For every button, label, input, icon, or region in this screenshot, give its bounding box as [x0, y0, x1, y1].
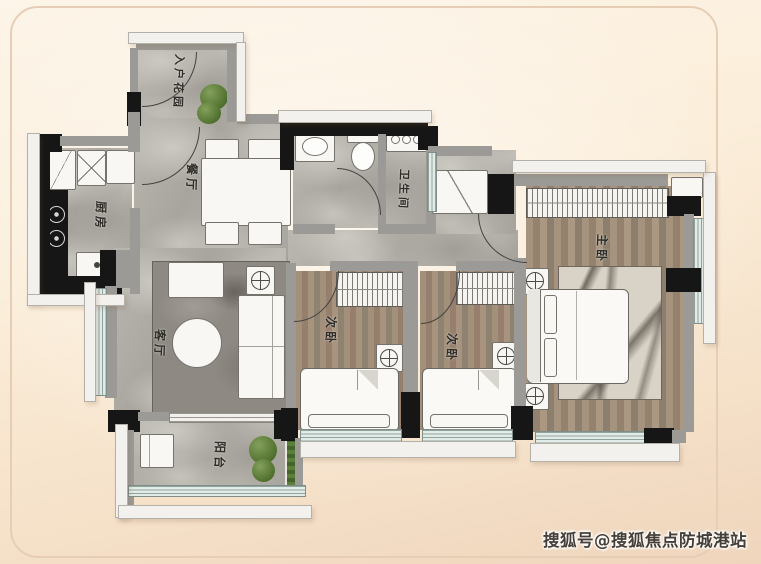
exterior-band [300, 441, 516, 458]
lamp-icon [526, 272, 544, 290]
floorplan-page: { "plan": { "rooms": [ {"id": "entry-gar… [0, 0, 761, 564]
washer-knob-icon [391, 135, 400, 144]
exterior-band [27, 294, 125, 306]
washer-knob-icon [402, 135, 411, 144]
room-label-living: 客厅 [151, 329, 169, 360]
lamp-icon [380, 349, 398, 367]
bedroom-3-bed-fold [478, 370, 499, 390]
entry-plant-2-icon [197, 102, 221, 124]
wall [456, 261, 516, 271]
kitchen-shaft [77, 150, 106, 186]
wall [378, 224, 436, 234]
lamp-icon [526, 387, 544, 405]
bathroom-window [427, 152, 437, 212]
master-bed-pillow [544, 295, 557, 334]
fridge [46, 150, 76, 190]
bedroom-2-wardrobe [336, 272, 404, 307]
wall [514, 258, 526, 408]
kitchen-counter [106, 150, 135, 184]
column [401, 392, 420, 438]
wall [60, 136, 138, 146]
lamp-icon [497, 347, 515, 365]
room-label-entry-garden: 入户花园 [170, 54, 188, 111]
wall [672, 430, 686, 443]
balcony-washing-machine [140, 434, 174, 468]
room-label-bedroom-2: 次卧 [322, 316, 340, 347]
column [274, 410, 296, 439]
wall-black [280, 122, 294, 170]
wall [330, 261, 403, 271]
wall [128, 112, 140, 152]
wall [514, 174, 668, 186]
column [488, 174, 514, 214]
coffee-table [172, 318, 222, 368]
balcony-sliding-door [169, 412, 275, 423]
master-bed [527, 289, 629, 384]
column [511, 406, 533, 440]
stove-burner-icon [48, 206, 65, 223]
entry-niche [432, 170, 488, 214]
room-label-balcony: 阳台 [211, 441, 229, 472]
wall [116, 250, 130, 288]
wall [130, 48, 138, 94]
exterior-band [128, 32, 244, 44]
room-label-dining: 餐厅 [183, 163, 201, 194]
master-wardrobe [526, 188, 669, 218]
exterior-band [703, 172, 716, 344]
room-label-kitchen: 厨房 [92, 201, 110, 232]
sofa [238, 295, 285, 399]
watermark-text: 搜狐号@搜狐焦点防城港站 [543, 527, 761, 551]
exterior-band [236, 42, 246, 122]
wall [684, 292, 694, 432]
balcony-plant-2-icon [252, 459, 275, 482]
vanity-basin-icon [302, 137, 328, 156]
bedroom-3-wardrobe [456, 272, 520, 305]
wall [138, 412, 170, 421]
column [667, 196, 701, 216]
master-ac-unit [671, 177, 703, 198]
exterior-band [512, 160, 706, 173]
column [666, 268, 701, 292]
floorplan: 入户花园 厨房 餐厅 卫生间 客厅 阳台 次卧 次卧 主卧 [0, 0, 761, 564]
stove-burner-2-icon [48, 230, 65, 247]
dining-chair [205, 222, 239, 245]
dining-chair [248, 222, 282, 245]
bedroom-2-pillow [308, 414, 390, 428]
exterior-band [115, 424, 128, 518]
lamp-icon [251, 271, 270, 290]
wall [428, 146, 492, 156]
master-bed-headboard [527, 289, 541, 382]
toilet-bowl-icon [351, 142, 375, 171]
room-label-bathroom: 卫生间 [395, 169, 412, 212]
wall-black [280, 122, 428, 136]
exterior-band [27, 133, 40, 303]
master-bed-pillow [544, 338, 557, 377]
exterior-band [530, 443, 680, 462]
wall [130, 208, 140, 294]
wall [293, 224, 335, 234]
wall [403, 261, 418, 393]
bedroom-2-bed-fold [357, 370, 378, 390]
wall [227, 42, 236, 122]
room-label-master-bedroom: 主卧 [593, 234, 611, 265]
bedroom-3-pillow [430, 414, 508, 428]
exterior-band [278, 110, 432, 123]
exterior-band [118, 505, 312, 519]
dining-table [201, 158, 291, 226]
master-bed-seam [576, 291, 577, 380]
wall [378, 134, 386, 230]
balcony-balustrade [128, 485, 306, 497]
room-label-bedroom-3: 次卧 [443, 333, 461, 364]
tv-console [168, 262, 224, 298]
exterior-band [84, 282, 96, 402]
